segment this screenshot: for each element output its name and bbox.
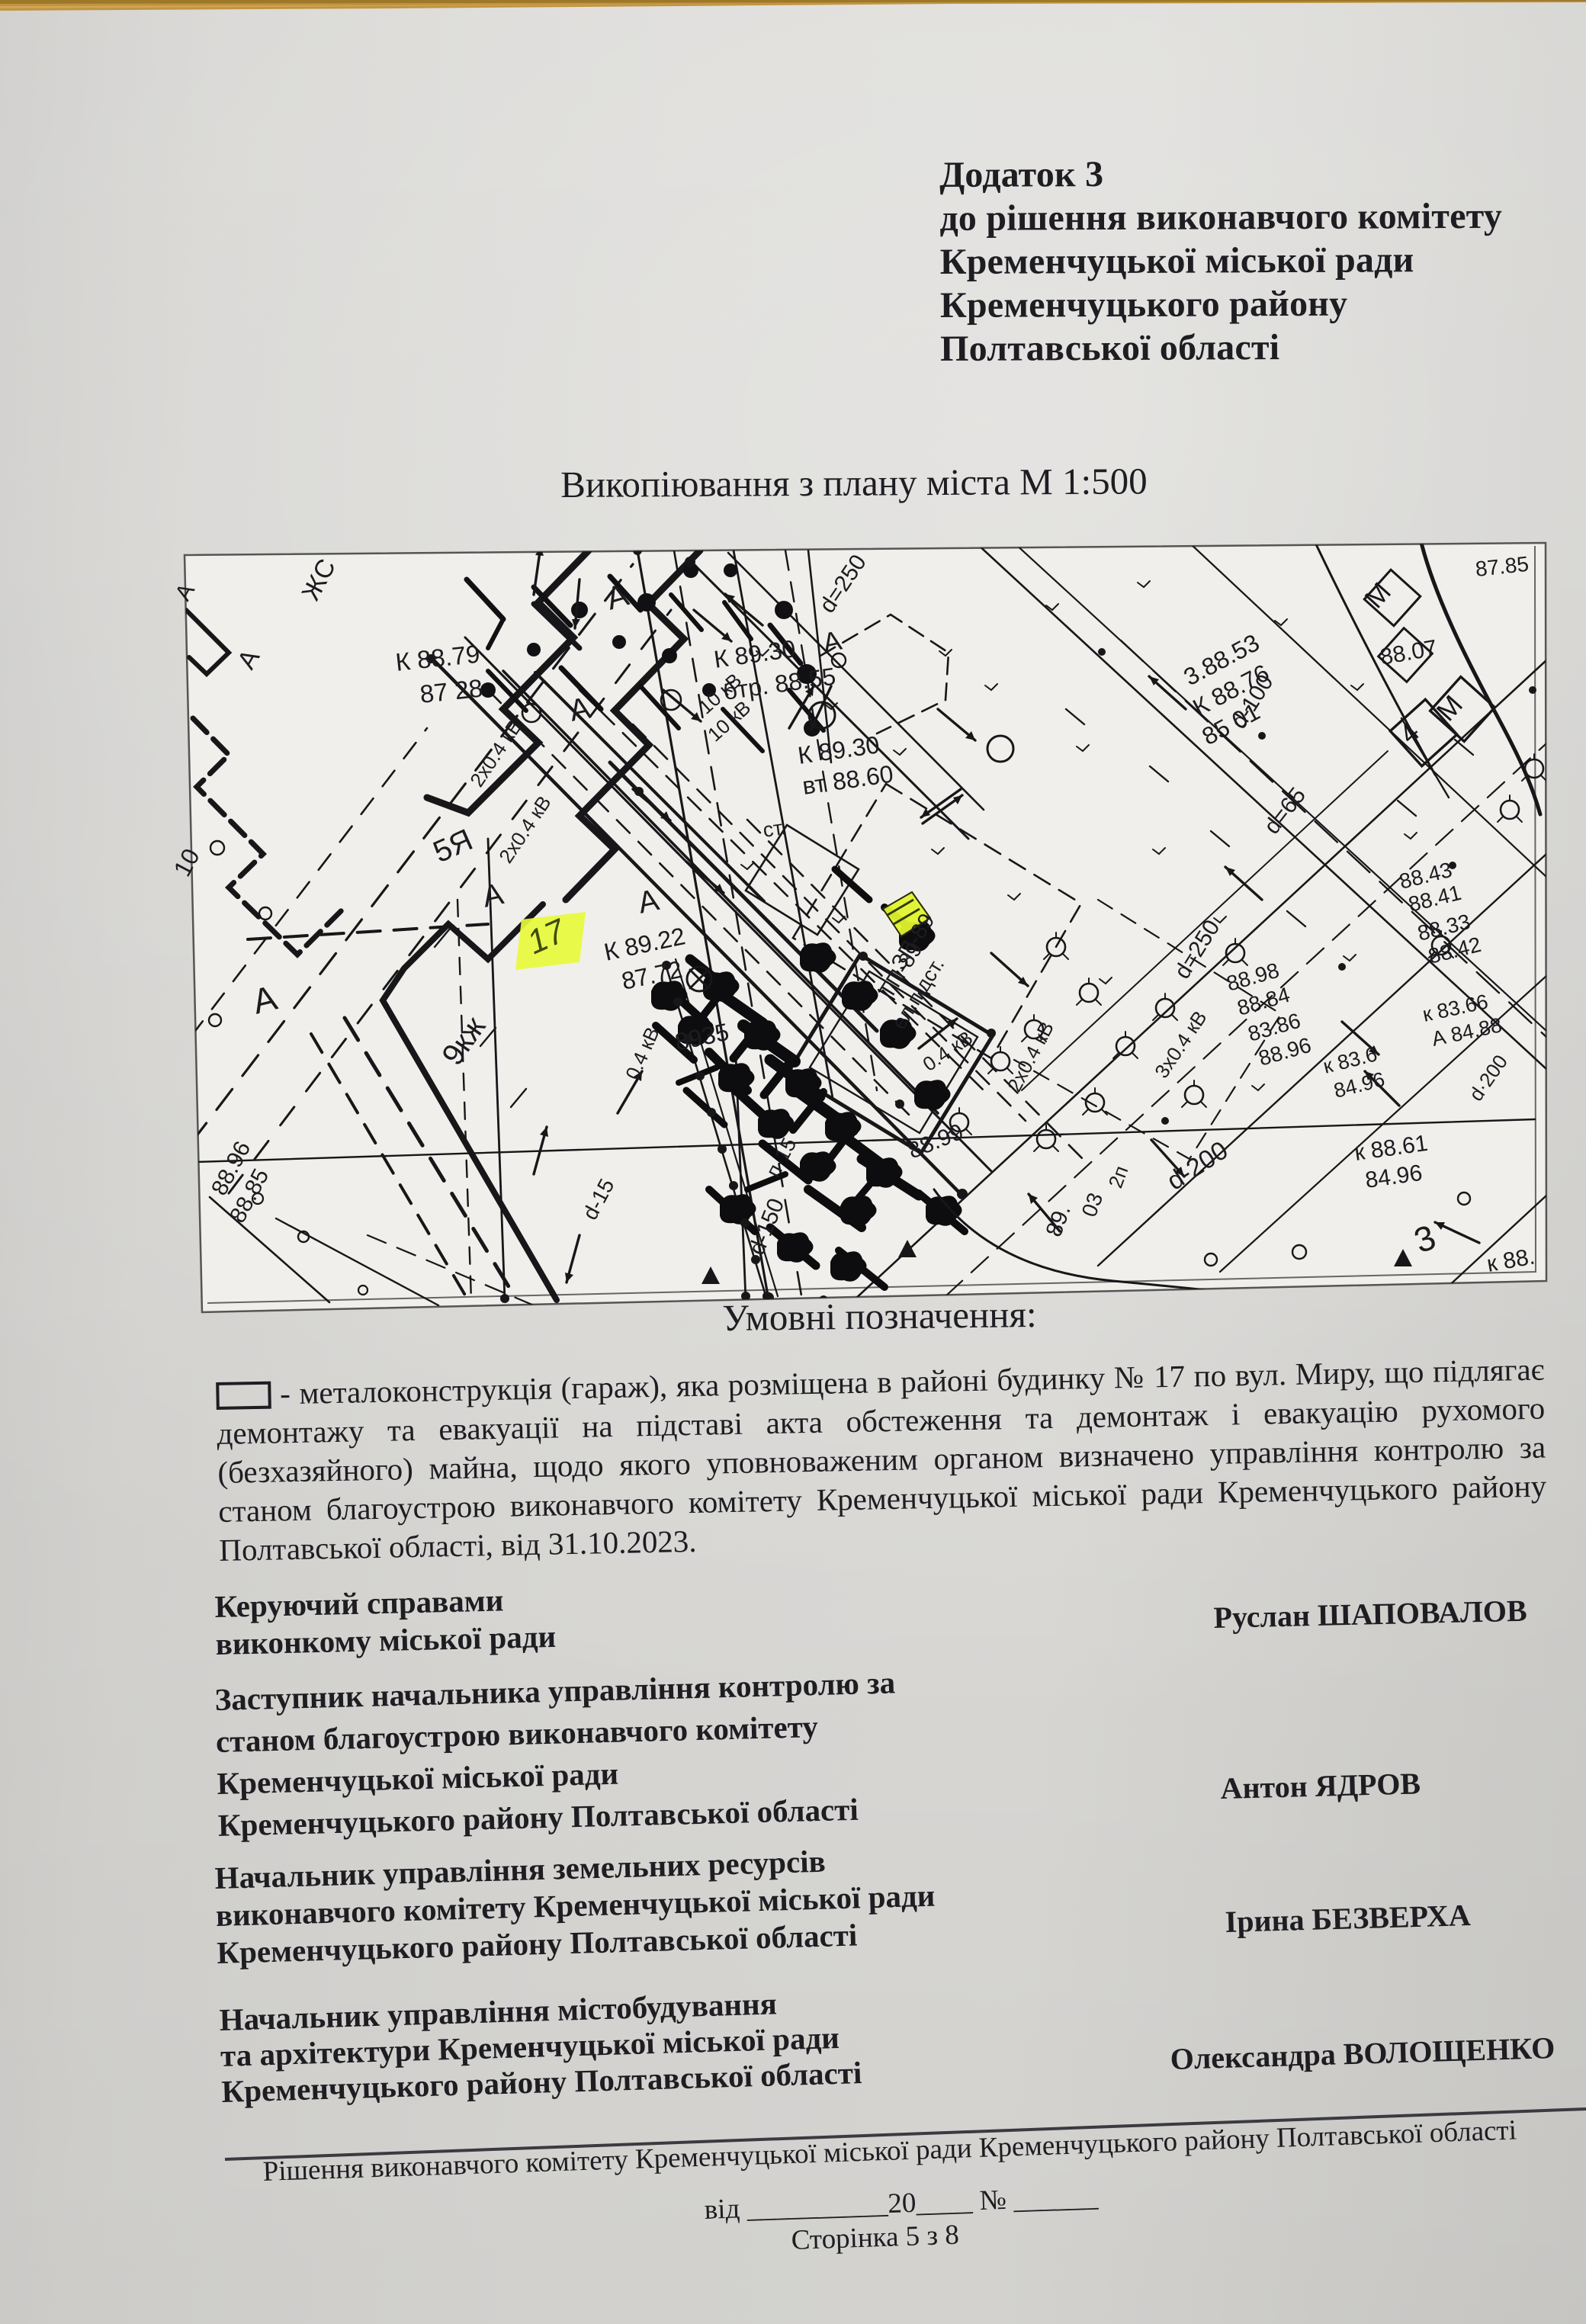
svg-text:ст.: ст. — [762, 816, 788, 842]
